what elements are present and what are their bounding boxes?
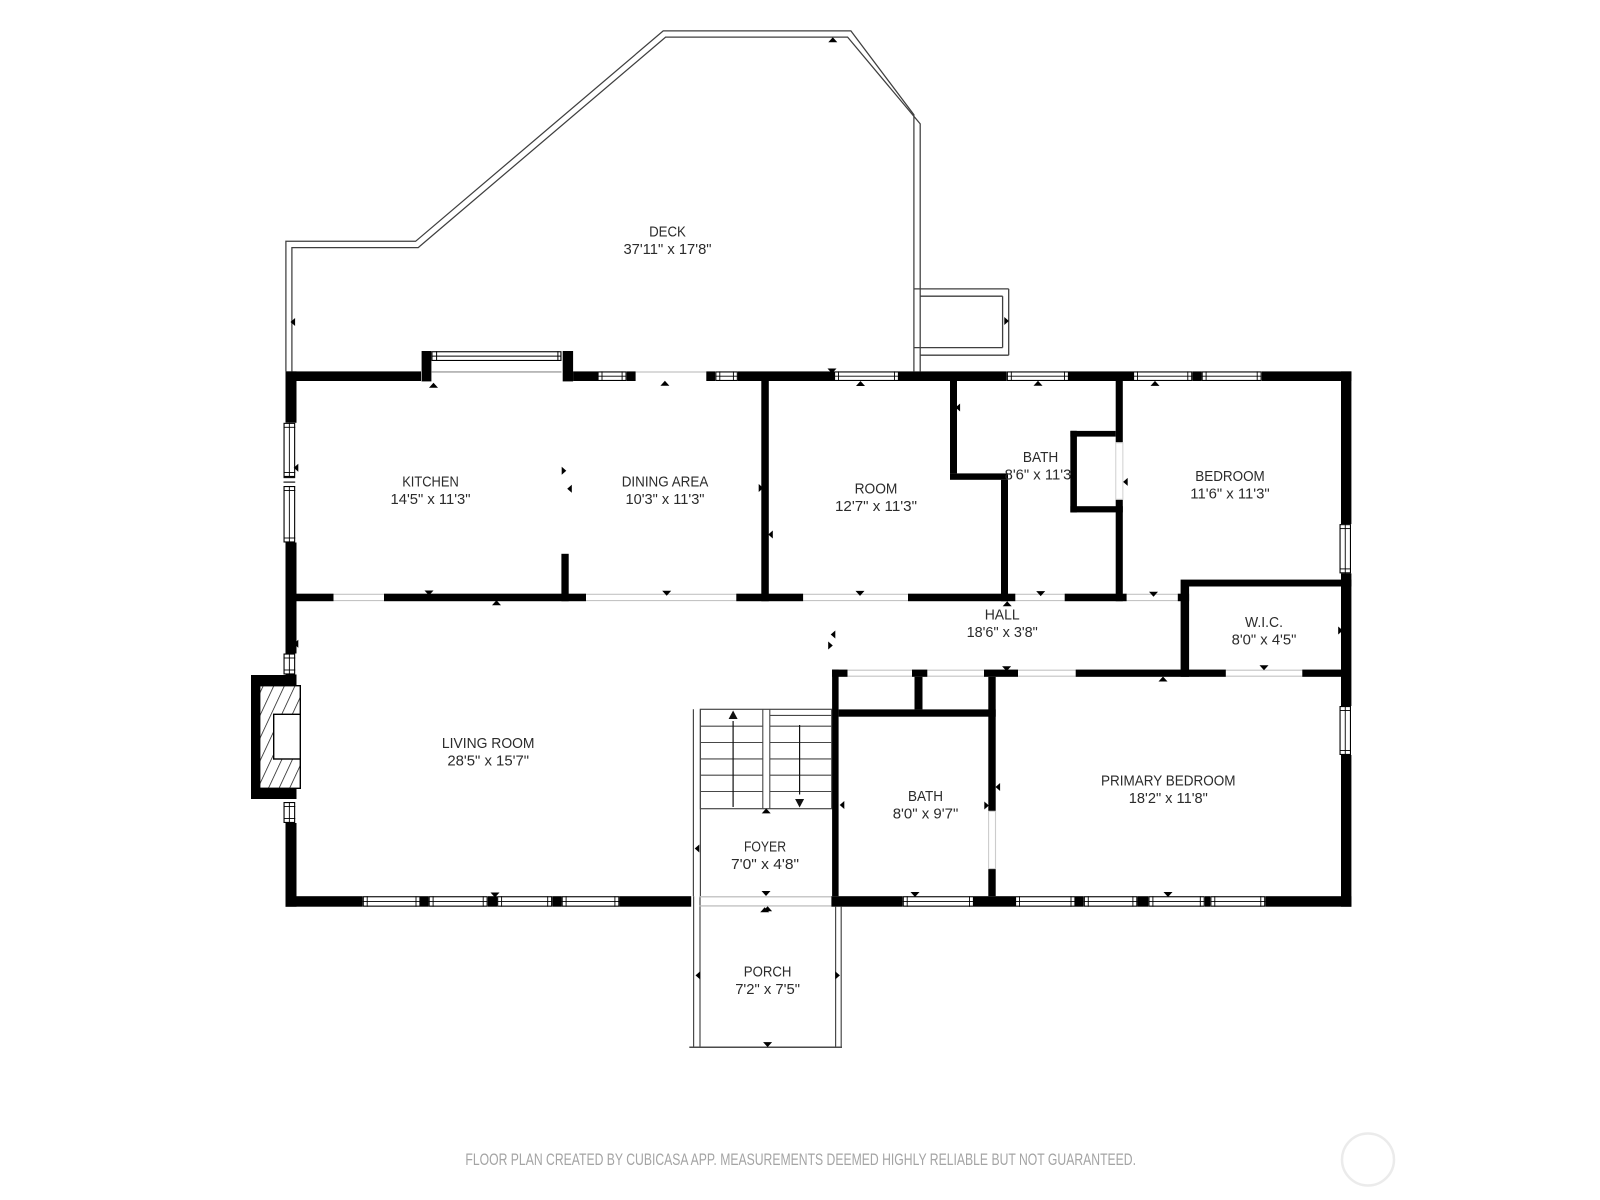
svg-text:11'6" x 11'3": 11'6" x 11'3": [1190, 486, 1269, 503]
svg-text:DINING AREA: DINING AREA: [622, 473, 709, 490]
svg-text:W.I.C.: W.I.C.: [1245, 614, 1283, 631]
svg-text:18'2" x 11'8": 18'2" x 11'8": [1129, 790, 1208, 807]
svg-text:ROOM: ROOM: [855, 481, 898, 498]
svg-text:LIVING ROOM: LIVING ROOM: [442, 735, 535, 752]
svg-text:10'3" x 11'3": 10'3" x 11'3": [626, 491, 705, 508]
svg-text:28'5" x 15'7": 28'5" x 15'7": [447, 753, 529, 770]
svg-text:12'7" x 11'3": 12'7" x 11'3": [835, 498, 917, 515]
svg-text:HALL: HALL: [985, 607, 1020, 624]
svg-text:KITCHEN: KITCHEN: [402, 474, 459, 491]
svg-text:8'0" x 9'7": 8'0" x 9'7": [893, 805, 959, 822]
svg-text:FOYER: FOYER: [744, 838, 786, 855]
svg-text:14'5" x 11'3": 14'5" x 11'3": [391, 491, 471, 508]
svg-text:PORCH: PORCH: [744, 964, 792, 981]
svg-text:FLOOR PLAN CREATED BY CUBICASA: FLOOR PLAN CREATED BY CUBICASA APP. MEAS…: [465, 1151, 1136, 1169]
svg-text:8'6" x 11'3": 8'6" x 11'3": [1005, 467, 1077, 484]
svg-text:DECK: DECK: [649, 224, 686, 241]
svg-text:BEDROOM: BEDROOM: [1195, 468, 1265, 485]
svg-text:7'0" x 4'8": 7'0" x 4'8": [731, 856, 799, 873]
svg-text:7'2" x 7'5": 7'2" x 7'5": [735, 981, 800, 998]
svg-text:8'0" x 4'5": 8'0" x 4'5": [1232, 631, 1297, 648]
svg-text:37'11" x 17'8": 37'11" x 17'8": [623, 241, 711, 258]
svg-text:BATH: BATH: [1023, 449, 1058, 466]
svg-text:18'6" x 3'8": 18'6" x 3'8": [967, 624, 1038, 641]
svg-text:PRIMARY BEDROOM: PRIMARY BEDROOM: [1101, 773, 1236, 790]
svg-text:BATH: BATH: [908, 788, 943, 805]
